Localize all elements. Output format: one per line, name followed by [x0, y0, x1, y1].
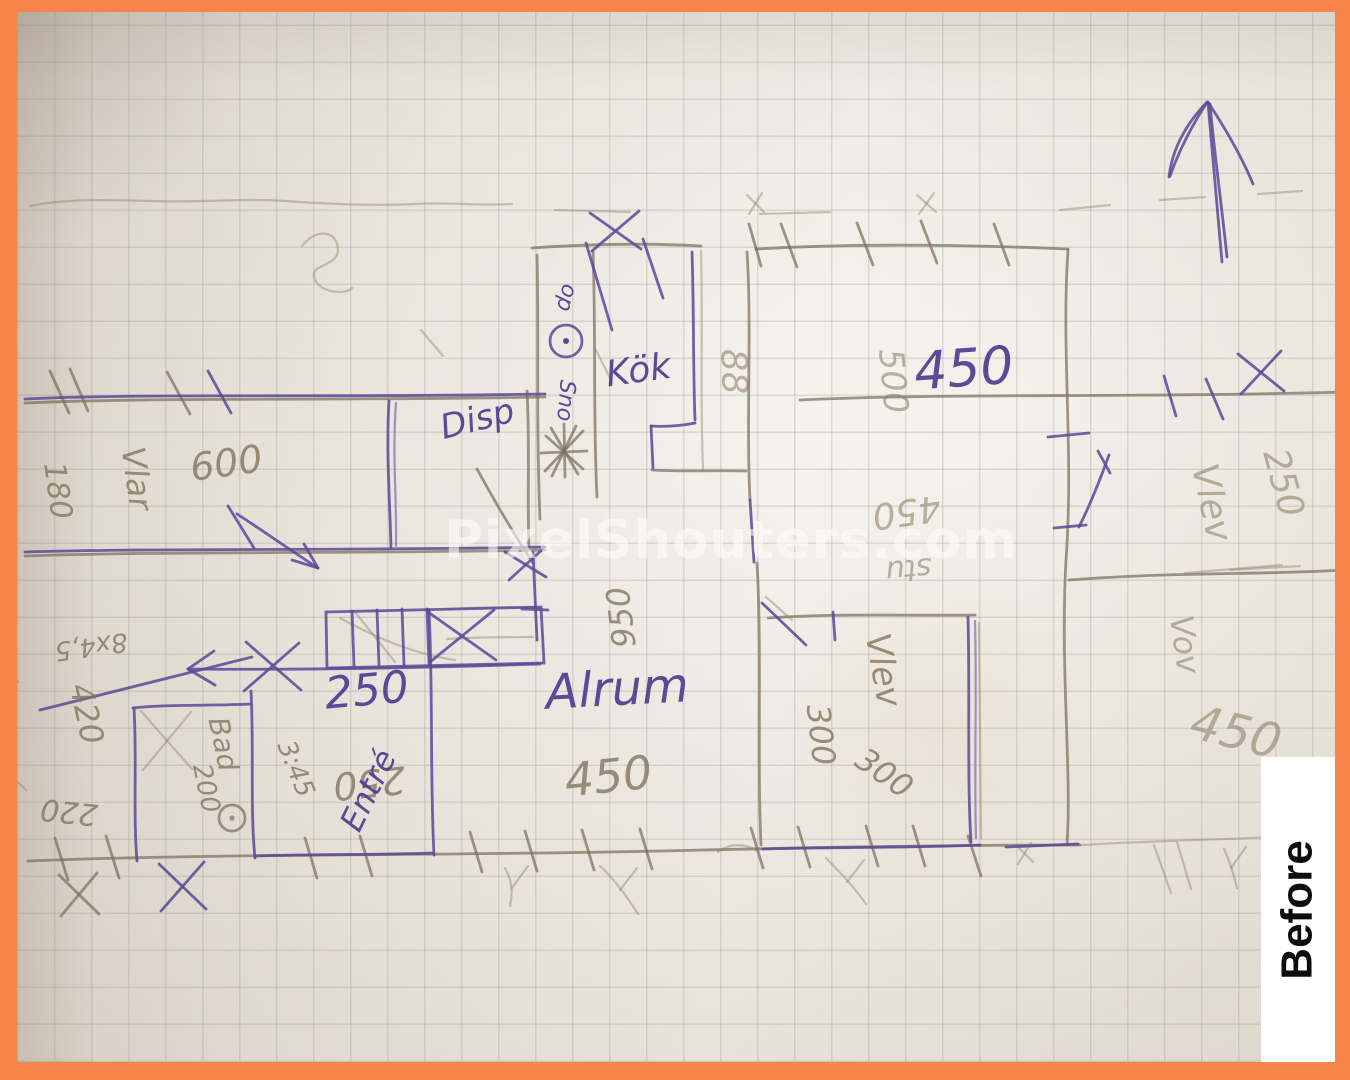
room-label-left: Vlar — [114, 444, 161, 514]
chimney-note-op: op — [551, 281, 582, 314]
room-label-right-vlev: Vlev — [1183, 460, 1239, 546]
dim-vlev-300a: 300 — [799, 702, 843, 767]
note-345: 3:45 — [271, 736, 321, 801]
before-badge-label: Before — [1273, 840, 1323, 979]
dim-220: 220 — [39, 791, 100, 832]
dim-entre-250: 250 — [323, 661, 411, 719]
dim-kok-88: 88 — [712, 348, 755, 395]
room-label-kok: Kök — [603, 345, 675, 395]
room-label-vov: Vov — [1162, 613, 1208, 677]
dim-600: 600 — [187, 436, 265, 490]
note-8x45: 8x4,5 — [53, 626, 130, 666]
watermark-text: PixelShouters.com — [444, 510, 1019, 571]
before-badge: Before — [1261, 757, 1335, 1062]
dim-180: 180 — [36, 460, 79, 522]
kitchen-counter — [692, 252, 695, 420]
star-mark — [541, 424, 587, 477]
north-arrow — [1169, 102, 1253, 262]
dim-420: 420 — [62, 680, 112, 748]
dim-alrum-450: 450 — [562, 745, 655, 808]
dim-right-250: 250 — [1254, 445, 1311, 522]
chimney-note-sno: Sno — [551, 379, 580, 422]
room-label-alrum: Alrum — [541, 657, 690, 721]
dim-vlev-300b: 300 — [848, 740, 920, 806]
dim-450-large: 450 — [912, 336, 1015, 403]
room-label-vlev: Vlev — [857, 630, 909, 710]
dim-950: 950 — [599, 585, 644, 650]
dim-500: 500 — [870, 347, 916, 415]
pencil-squiggle — [302, 234, 352, 292]
